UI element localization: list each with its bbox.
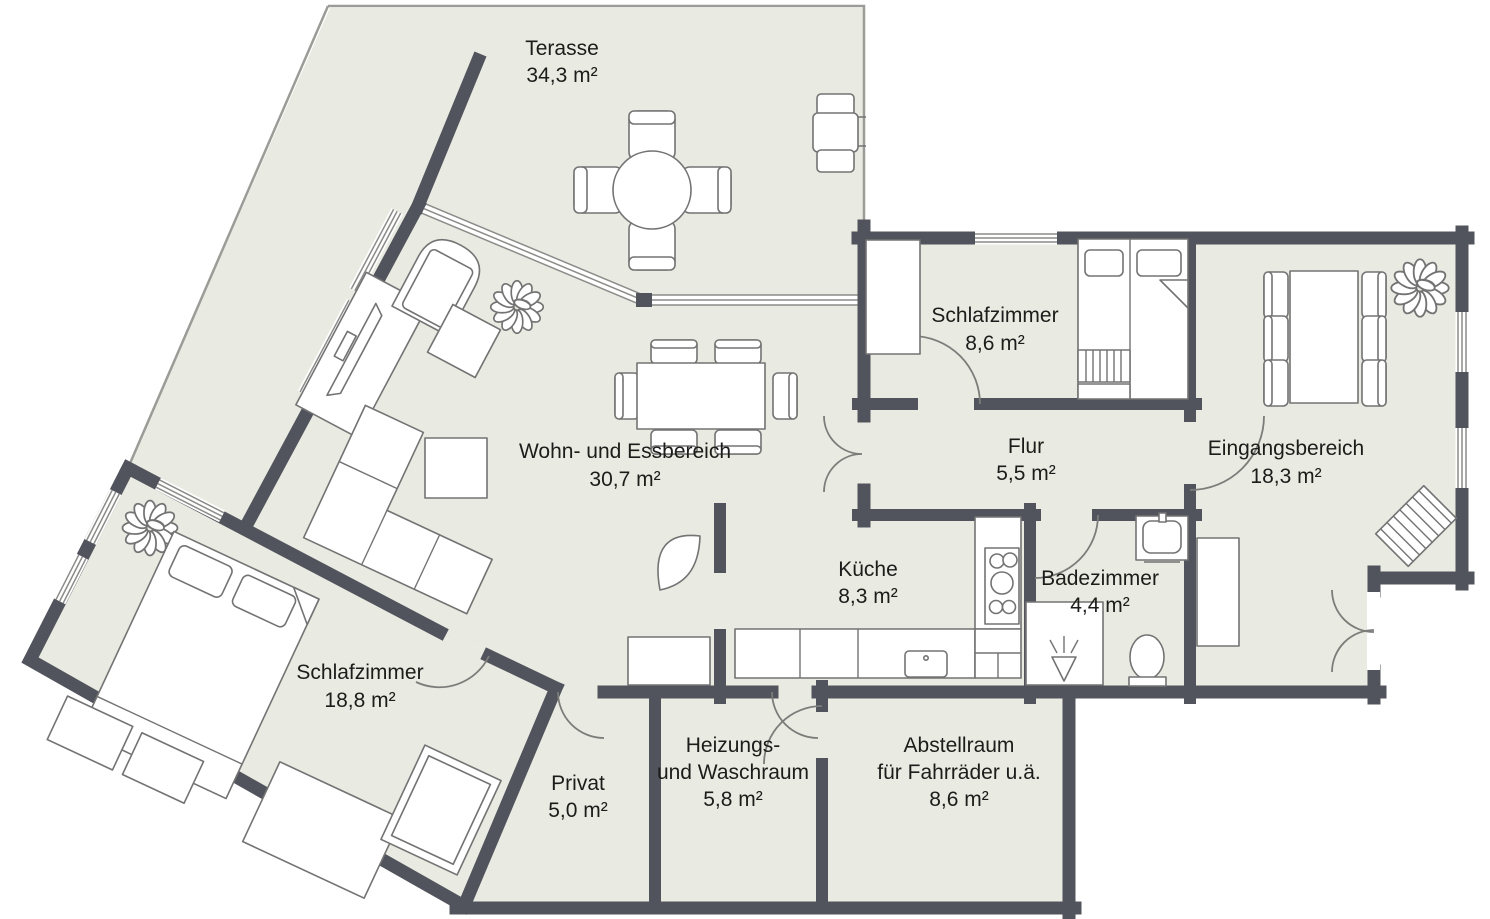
chair-icon: [1362, 316, 1386, 362]
cabinet-icon: [628, 637, 710, 685]
round-table-icon: [613, 151, 691, 229]
room-label-heizung-1: Heizungs-: [686, 734, 781, 757]
window-icon: [975, 232, 1057, 245]
room-area-privat: 5,0 m²: [548, 799, 608, 822]
room-label-badezimmer: Badezimmer: [1041, 567, 1159, 590]
room-area-wohn-essbereich: 30,7 m²: [589, 468, 660, 491]
room-area-kueche: 8,3 m²: [838, 585, 898, 608]
kitchen-counter-icon: [735, 629, 975, 678]
floor-plan-page: Terasse 34,3 m² Schlafzimmer 8,6 m² Wohn…: [0, 0, 1490, 919]
room-label-schlafzimmer-gross: Schlafzimmer: [296, 661, 423, 684]
room-area-eingangsbereich: 18,3 m²: [1250, 465, 1321, 488]
room-area-heizung: 5,8 m²: [703, 788, 763, 811]
room-area-flur: 5,5 m²: [996, 462, 1056, 485]
wardrobe-icon: [1197, 538, 1239, 646]
room-label-abstellraum-2: für Fahrräder u.ä.: [877, 761, 1040, 784]
chair-icon: [1264, 272, 1288, 318]
dining-table-icon: [1290, 271, 1358, 403]
room-label-terrasse: Terasse: [525, 37, 599, 60]
room-area-abstellraum: 8,6 m²: [929, 788, 989, 811]
glass-wall: [642, 295, 864, 306]
room-label-wohn-essbereich: Wohn- und Essbereich: [519, 440, 731, 463]
chair-icon: [715, 340, 761, 364]
chair-icon: [1264, 360, 1288, 406]
window-icon: [1456, 312, 1469, 372]
room-label-flur: Flur: [1008, 435, 1044, 458]
sink-icon: [905, 651, 947, 677]
chair-icon: [615, 373, 639, 419]
toilet-icon: [1129, 635, 1166, 686]
washbasin-icon: [1136, 513, 1188, 562]
room-label-heizung-2: und Waschraum: [657, 761, 809, 784]
chair-icon: [1362, 360, 1386, 406]
glazing-corner: [636, 293, 652, 307]
chair-icon: [1362, 272, 1386, 318]
stove-icon: [985, 548, 1019, 624]
wardrobe-icon: [866, 240, 920, 354]
dining-table-icon: [637, 363, 765, 429]
room-area-terrasse: 34,3 m²: [526, 64, 597, 87]
floor-plan: Terasse 34,3 m² Schlafzimmer 8,6 m² Wohn…: [0, 0, 1490, 919]
room-area-schlafzimmer-gross: 18,8 m²: [324, 689, 395, 712]
room-label-abstellraum-1: Abstellraum: [904, 734, 1015, 757]
room-label-eingangsbereich: Eingangsbereich: [1208, 437, 1364, 460]
room-label-kueche: Küche: [838, 558, 898, 581]
chair-icon: [1264, 316, 1288, 362]
eingang-dining-set: [1264, 271, 1386, 406]
room-label-schlafzimmer-klein: Schlafzimmer: [931, 304, 1058, 327]
coffee-table-icon: [425, 438, 487, 498]
room-label-privat: Privat: [551, 772, 605, 795]
room-area-schlafzimmer-klein: 8,6 m²: [965, 332, 1025, 355]
window-icon: [1456, 428, 1469, 488]
kitchen-column: [975, 517, 1021, 678]
chair-icon: [651, 340, 697, 364]
room-area-badezimmer: 4,4 m²: [1070, 594, 1130, 617]
chair-icon: [773, 373, 797, 419]
bunk-bed-icon: [1078, 239, 1188, 399]
